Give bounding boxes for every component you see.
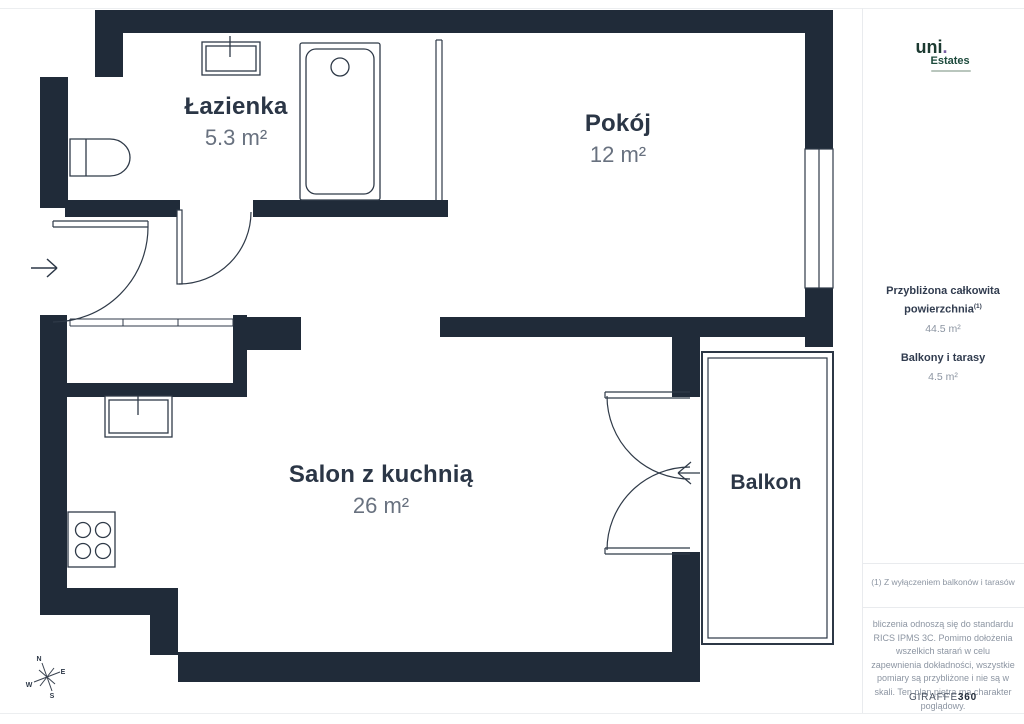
- footnote: (1) Z wyłączeniem balkonów i tarasów: [862, 577, 1024, 587]
- room-name: Salon z kuchnią: [289, 461, 473, 489]
- entrance-door: [53, 221, 148, 322]
- room-label-pokoj: Pokój 12 m²: [585, 110, 651, 168]
- wall-topleft-stub: [95, 33, 123, 77]
- compass-w-label: W: [26, 682, 33, 689]
- room-area: 26 m²: [289, 493, 473, 519]
- balcony-area-label: Balkony i tarasy: [862, 351, 1024, 366]
- room-label-salon: Salon z kuchnią 26 m²: [289, 461, 473, 519]
- wall-bath-bottom-right: [253, 200, 448, 217]
- wall-hall-corner: [247, 317, 301, 350]
- wall-pokoj-bottom: [440, 317, 833, 337]
- bathroom-sink-icon: [202, 36, 260, 75]
- balcony-french-doors: [605, 392, 700, 554]
- agency-logo: uni. Estates: [862, 38, 1024, 72]
- room-area: 12 m²: [585, 142, 651, 168]
- sidebar-divider-mid: [863, 607, 1024, 608]
- info-sidebar: uni. Estates Przybliżona całkowita powie…: [862, 0, 1024, 724]
- stove-icon: [68, 512, 115, 567]
- room-label-balkon: Balkon: [730, 471, 801, 495]
- wall-step-horizontal: [40, 588, 178, 615]
- wall-balcony-upper: [672, 337, 700, 397]
- compass-n-label: N: [36, 656, 41, 663]
- floor-plan-svg: N E W S: [0, 0, 862, 724]
- entrance-arrow-icon: [31, 259, 57, 277]
- room-label-lazienka: Łazienka 5.3 m²: [185, 93, 288, 151]
- giraffe-text: GIRAFFE: [909, 692, 958, 703]
- room-name: Łazienka: [185, 93, 288, 121]
- room-name: Balkon: [730, 471, 801, 495]
- sidebar-divider-top: [863, 563, 1024, 564]
- toilet-icon: [70, 139, 130, 176]
- compass-s-label: S: [50, 693, 55, 700]
- total-area-value: 44.5 m²: [862, 323, 1024, 335]
- floor-plan: N E W S Łazienka 5.3 m² Pokój 12 m² Salo…: [0, 0, 862, 724]
- wall-salon-bottom: [178, 652, 700, 682]
- balcony-area-value: 4.5 m²: [862, 371, 1024, 383]
- room-area: 5.3 m²: [185, 125, 288, 151]
- area-summary: Przybliżona całkowita powierzchnia(1) 44…: [862, 284, 1024, 383]
- balcony-outline: [702, 352, 833, 644]
- window: [805, 149, 833, 288]
- closet-front: [70, 319, 233, 326]
- logo-dot: .: [943, 37, 948, 57]
- room-name: Pokój: [585, 110, 651, 138]
- total-area-label-line1: Przybliżona całkowita: [886, 285, 1000, 297]
- total-area-label: Przybliżona całkowita powierzchnia(1): [862, 284, 1024, 318]
- wall-left-salon: [40, 315, 67, 588]
- bathtub-icon: [300, 43, 380, 200]
- floor-plan-page: N E W S Łazienka 5.3 m² Pokój 12 m² Salo…: [0, 0, 1024, 724]
- logo-tagline: [931, 70, 971, 72]
- bathroom-door: [177, 210, 251, 284]
- wall-right-upper: [805, 33, 833, 152]
- thin-partition: [436, 40, 442, 200]
- wall-bath-bottom-left: [65, 200, 180, 217]
- logo-wordmark: uni.: [916, 38, 971, 56]
- wall-right-below-window: [805, 285, 833, 347]
- giraffe360-brand: GIRAFFE360: [862, 692, 1024, 703]
- total-area-label-line2: powierzchnia: [904, 304, 974, 316]
- total-area-footnote-ref: (1): [974, 303, 982, 310]
- wall-left-bath: [40, 77, 68, 208]
- giraffe-360-text: 360: [958, 692, 977, 703]
- wall-step-vertical: [150, 615, 178, 655]
- logo-subtitle: Estates: [931, 55, 971, 67]
- wall-top: [95, 10, 833, 33]
- kitchen-sink-icon: [105, 396, 172, 437]
- logo-text: uni: [916, 37, 943, 57]
- compass-e-label: E: [61, 669, 66, 676]
- compass-icon: N E W S: [26, 656, 66, 700]
- wall-below-closet: [43, 383, 247, 397]
